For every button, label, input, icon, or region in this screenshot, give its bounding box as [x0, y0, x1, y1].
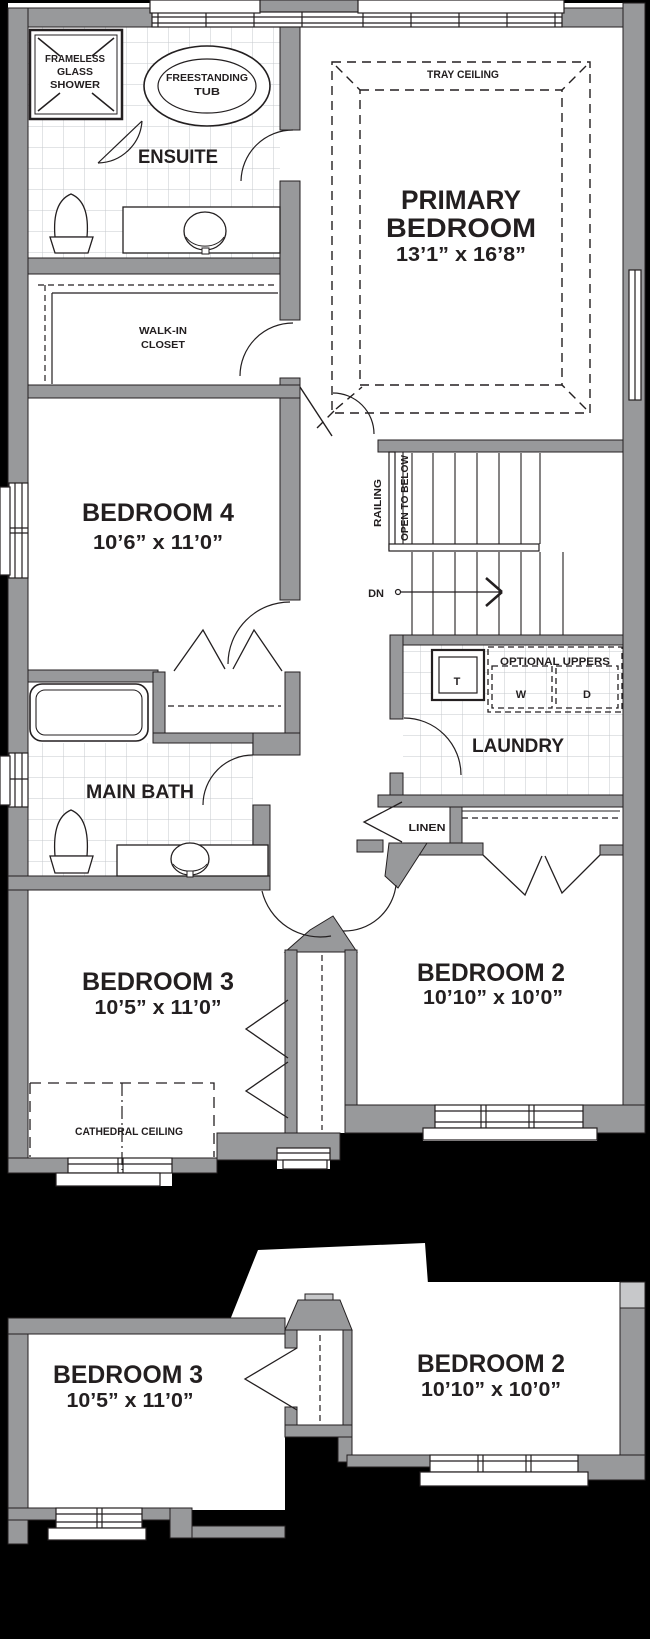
- tub-label-line1: FREESTANDING: [166, 72, 248, 84]
- ensuite-vanity: [123, 207, 280, 254]
- window-main-bath: [0, 753, 28, 807]
- tub-label-line2: TUB: [194, 86, 220, 98]
- shower-label-line2: GLASS: [57, 66, 93, 78]
- open-to-below-label: OPEN TO BELOW: [399, 455, 411, 541]
- alt-bedroom3-label: BEDROOM 3: [53, 1361, 203, 1389]
- bedroom4-dims: 10’6” x 11’0”: [93, 532, 223, 554]
- main-bath-label: MAIN BATH: [86, 782, 194, 803]
- bedroom3-label: BEDROOM 3: [82, 968, 234, 996]
- stair-railing-horizontal: [389, 544, 539, 551]
- main-bath-vanity: [117, 843, 268, 877]
- window-right-wall: [629, 270, 641, 400]
- walk-in-closet-label-line2: CLOSET: [141, 339, 186, 351]
- floor-plan-drawing: FRAMELESS GLASS SHOWER FREESTANDING TUB …: [0, 0, 650, 1639]
- linen-label: LINEN: [409, 822, 446, 834]
- primary-bedroom-label-line2: BEDROOM: [386, 213, 536, 243]
- shower-label-line1: FRAMELESS: [45, 53, 105, 65]
- optional-uppers-label: OPTIONAL UPPERS: [500, 656, 610, 668]
- window-bedroom2: [423, 1105, 597, 1140]
- window-bedroom4: [0, 483, 28, 578]
- dryer-label: D: [583, 689, 591, 701]
- bedroom2-label: BEDROOM 2: [417, 959, 565, 987]
- bedroom4-label: BEDROOM 4: [82, 499, 234, 527]
- floor-plan-page: FRAMELESS GLASS SHOWER FREESTANDING TUB …: [0, 0, 650, 1639]
- bedroom2-dims: 10’10” x 10’0”: [423, 987, 563, 1009]
- window-hall-small: [277, 1148, 330, 1169]
- bedroom3-dims: 10’5” x 11’0”: [95, 997, 222, 1019]
- dn-label: DN: [368, 588, 384, 600]
- alt-bedroom2-label: BEDROOM 2: [417, 1350, 565, 1378]
- alt-bedroom3-dims: 10’5” x 11’0”: [67, 1390, 194, 1412]
- cathedral-ceiling-label: CATHEDRAL CEILING: [75, 1126, 183, 1138]
- railing-label: RAILING: [372, 479, 384, 527]
- main-bath-tub: [30, 684, 148, 741]
- stair-railing-vertical: [389, 452, 395, 550]
- laundry-tub-label: T: [454, 676, 461, 688]
- washer-label: W: [516, 689, 527, 701]
- primary-bedroom-label-line1: PRIMARY: [401, 185, 521, 215]
- laundry-label: LAUNDRY: [472, 736, 564, 757]
- walk-in-closet-label-line1: WALK-IN: [139, 325, 187, 337]
- laundry-tub: [432, 650, 484, 700]
- ensuite-label: ENSUITE: [138, 147, 218, 168]
- alt-bedroom2-dims: 10’10” x 10’0”: [421, 1379, 561, 1401]
- window-bedroom3: [56, 1158, 172, 1186]
- shower-label-line3: SHOWER: [50, 79, 100, 91]
- primary-bedroom-dims: 13’1” x 16’8”: [396, 244, 526, 266]
- tray-ceiling-label: TRAY CEILING: [427, 69, 499, 81]
